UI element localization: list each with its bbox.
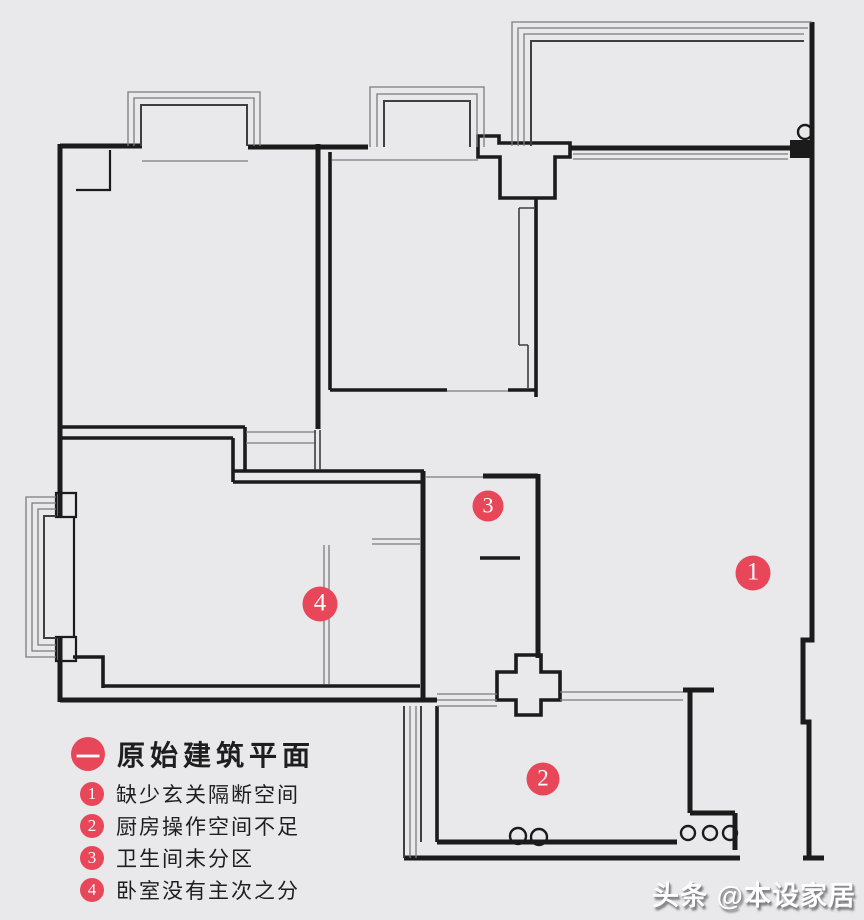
legend-title-row: 一 原始建筑平面 bbox=[71, 734, 315, 774]
legend-item-1-num: 1 bbox=[88, 784, 97, 804]
plan-marker-3: 3 bbox=[473, 491, 504, 522]
watermark: 头条 @本设家居 bbox=[652, 874, 856, 913]
plan-marker-2: 2 bbox=[527, 763, 560, 796]
legend-item-2-bullet: 2 bbox=[80, 814, 104, 838]
legend-title-bullet: 一 bbox=[71, 737, 105, 771]
plan-marker-2-number: 2 bbox=[537, 767, 549, 790]
legend-title-marker: 一 bbox=[76, 737, 100, 772]
legend-item-2: 2 厨房操作空间不足 bbox=[80, 811, 300, 841]
floorplan-page: 1 2 3 4 一 原始建筑平面 1 缺少玄关隔断空间 2 厨房操作空间不足 3… bbox=[0, 0, 864, 920]
legend-item-3-num: 3 bbox=[88, 848, 97, 868]
legend-item-4: 4 卧室没有主次之分 bbox=[80, 875, 300, 905]
plan-marker-3-number: 3 bbox=[483, 494, 494, 516]
legend-title: 原始建筑平面 bbox=[117, 734, 315, 774]
plan-marker-4: 4 bbox=[303, 587, 338, 622]
legend-item-4-text: 卧室没有主次之分 bbox=[116, 875, 300, 905]
legend-item-1-bullet: 1 bbox=[80, 782, 104, 806]
legend-item-2-text: 厨房操作空间不足 bbox=[116, 811, 300, 841]
legend-item-1-text: 缺少玄关隔断空间 bbox=[116, 779, 300, 809]
legend-item-4-bullet: 4 bbox=[80, 878, 104, 902]
balcony-wall-pier bbox=[790, 140, 814, 158]
legend-item-4-num: 4 bbox=[88, 880, 97, 900]
legend-item-3-bullet: 3 bbox=[80, 846, 104, 870]
walls-structural bbox=[60, 22, 824, 858]
legend-item-3-text: 卫生间未分区 bbox=[116, 843, 254, 873]
plan-marker-1-number: 1 bbox=[747, 560, 760, 585]
plan-marker-4-number: 4 bbox=[314, 591, 327, 616]
legend-item-2-num: 2 bbox=[88, 816, 97, 836]
plan-marker-1: 1 bbox=[736, 556, 771, 591]
legend-item-3: 3 卫生间未分区 bbox=[80, 843, 254, 873]
legend-item-1: 1 缺少玄关隔断空间 bbox=[80, 779, 300, 809]
hall-column bbox=[497, 655, 560, 715]
